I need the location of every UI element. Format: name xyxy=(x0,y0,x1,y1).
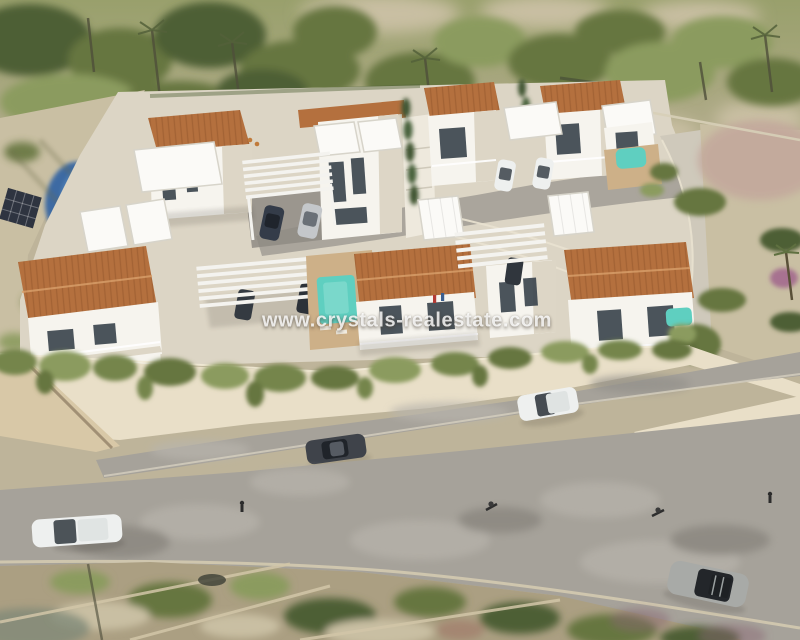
aerial-render: www.crystals-realestate.com xyxy=(0,0,800,640)
flat-roof-panel xyxy=(504,102,562,140)
flat-roof-panel xyxy=(134,142,222,192)
flat-roof-panel xyxy=(314,122,360,156)
flat-roof-panel xyxy=(126,199,172,245)
person-figure xyxy=(441,293,444,301)
flat-roof-panel xyxy=(358,118,402,152)
flat-roof-panel xyxy=(80,206,128,252)
villa-pool xyxy=(665,307,692,327)
person-figure xyxy=(433,295,436,303)
magenta-bush xyxy=(770,268,798,288)
plunge-pool xyxy=(615,147,647,170)
render-canvas xyxy=(0,0,800,640)
villa-center xyxy=(306,244,480,356)
